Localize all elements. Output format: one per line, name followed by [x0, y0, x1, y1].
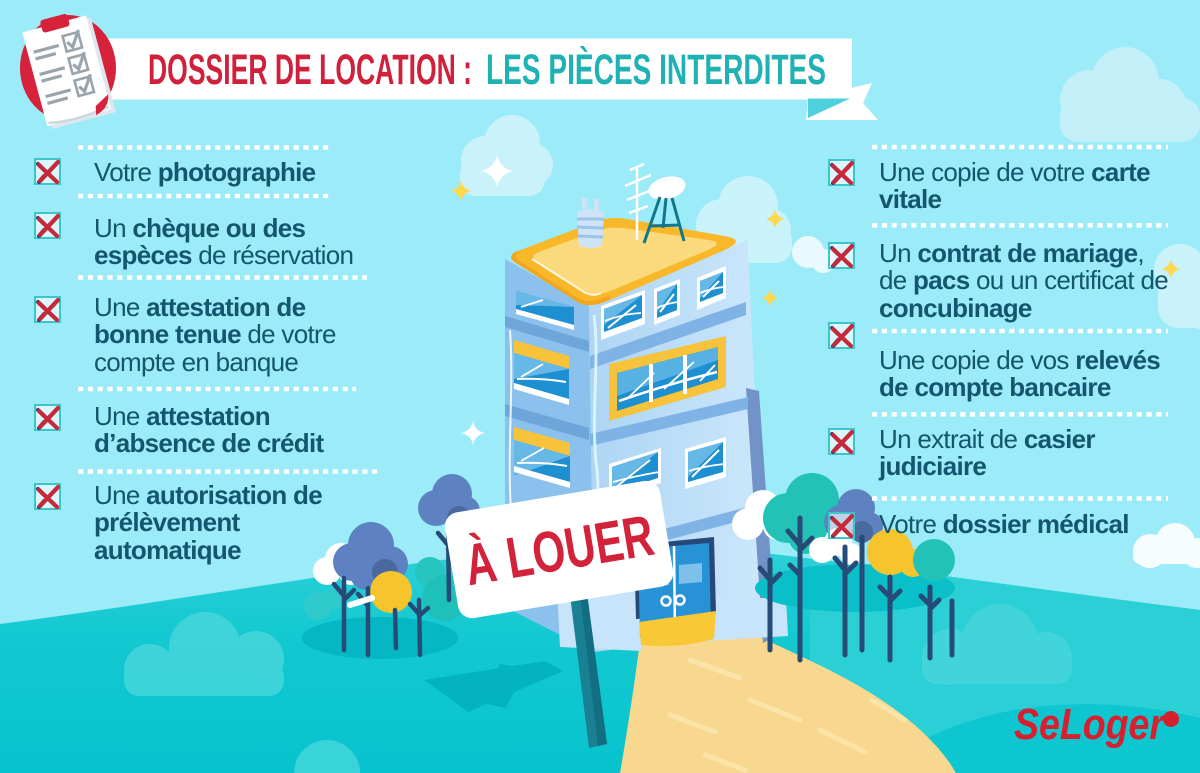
svg-text:SeLoger: SeLoger [1014, 700, 1166, 749]
svg-text:LES PIÈCES INTERDITES: LES PIÈCES INTERDITES [486, 46, 826, 94]
svg-text:DOSSIER DE LOCATION :: DOSSIER DE LOCATION : [148, 46, 472, 94]
